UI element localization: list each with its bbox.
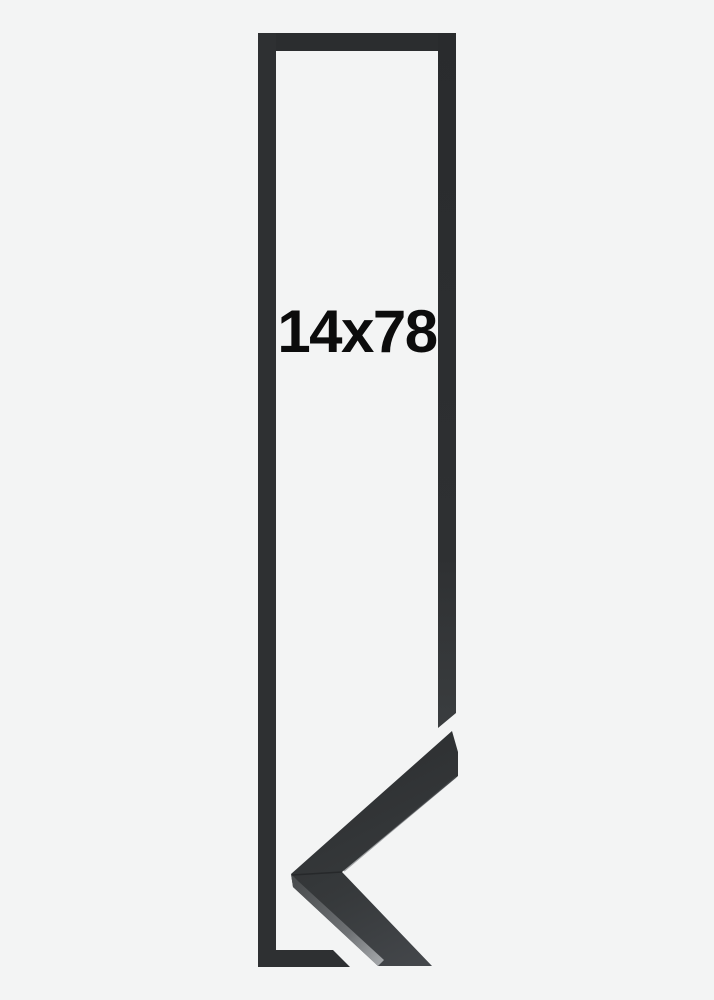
product-image: 14x78 bbox=[0, 0, 714, 1000]
dimension-label: 14x78 bbox=[0, 302, 714, 362]
frame-outline-top-bar bbox=[258, 33, 456, 51]
frame-outline-bottom-bar bbox=[258, 950, 350, 967]
frame-outline-left-bar bbox=[258, 33, 276, 967]
frame-illustration bbox=[0, 0, 714, 1000]
corner-sample-photo bbox=[291, 731, 458, 966]
frame-outline-right-bar bbox=[438, 33, 456, 728]
moulding-face bbox=[291, 731, 458, 966]
